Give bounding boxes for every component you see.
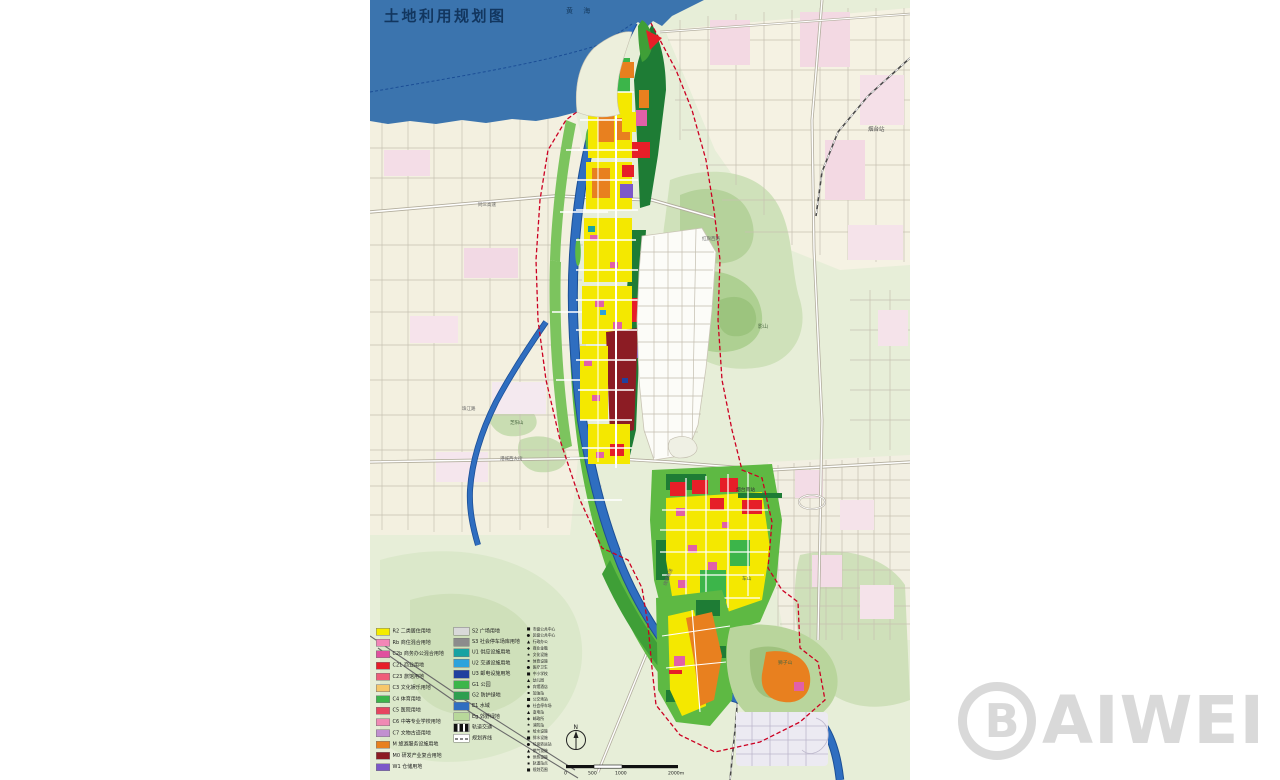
legend-column-landuse-1: R2 二类居住用地Rb 商住混合用地C2b 商务办公混合用地C21 商业用地C2… <box>376 626 450 780</box>
legend-item: S3 社会停车场库用地 <box>453 637 523 648</box>
legend-item-label: C21 商业用地 <box>393 663 424 668</box>
legend-symbol-icon: ● <box>526 666 532 670</box>
legend-item-label: M 旅游服务设施用地 <box>393 742 439 747</box>
legend-item-label: C23 旅馆用地 <box>393 674 424 679</box>
legend-color-swatch <box>453 734 469 743</box>
sea-name-label: 黄 海 <box>566 6 594 15</box>
legend-item-label: S3 社会停车场库用地 <box>472 640 520 645</box>
legend-item-label: C4 体育用地 <box>393 697 421 702</box>
legend: R2 二类居住用地Rb 商住混合用地C2b 商务办公混合用地C21 商业用地C2… <box>376 626 576 780</box>
legend-item-label: 中小学校 <box>533 672 548 676</box>
legend-color-swatch <box>376 639 390 647</box>
legend-color-swatch <box>376 730 390 738</box>
legend-item-label: 邮政所 <box>533 717 544 721</box>
legend-item-label: 垃圾转运站 <box>533 742 552 746</box>
legend-item-label: U3 邮电设施用地 <box>472 672 510 677</box>
legend-symbol-icon: ◆ <box>526 685 532 689</box>
legend-item: 轨道交通 <box>453 722 523 733</box>
legend-item-label: 给水设施 <box>533 730 548 734</box>
legend-color-swatch <box>453 713 469 722</box>
legend-color-swatch <box>453 670 469 679</box>
legend-symbol-icon: ● <box>526 742 532 746</box>
legend-item: 规划界线 <box>453 733 523 744</box>
legend-item-label: 社会停车场 <box>533 704 552 708</box>
legend-item-label: M0 研发产业复合用地 <box>393 753 442 758</box>
gangcheng-west-street-label: 港城西大街 <box>500 455 523 462</box>
legend-item: Rb 商住混合用地 <box>376 637 450 648</box>
legend-item-label: U2 交通设施用地 <box>472 661 510 666</box>
legend-item: W1 仓储用地 <box>376 762 450 773</box>
legend-item: C4 体育用地 <box>376 694 450 705</box>
legend-item-label: C5 医院用地 <box>393 708 421 713</box>
legend-color-swatch <box>376 662 390 670</box>
land-use-plan-screenshot: 土地利用规划图 黄 海 烟台站 红旗西路 影山 同三高速 珠江路 芝阳山 港城西… <box>0 0 1280 780</box>
hongqi-west-road-label: 红旗西路 <box>702 235 720 242</box>
legend-item-label: 市级公共中心 <box>533 627 556 631</box>
legend-color-swatch <box>453 638 469 647</box>
legend-item-label: W1 仓储用地 <box>393 765 423 770</box>
legend-color-swatch <box>376 628 390 636</box>
legend-item: C3 文化娱乐用地 <box>376 682 450 693</box>
legend-item-label: C7 文物古迹用地 <box>393 731 431 736</box>
legend-color-swatch <box>453 723 469 732</box>
legend-item-label: C6 中等专业学校用地 <box>393 720 441 725</box>
legend-item: M 旅游服务设施用地 <box>376 739 450 750</box>
legend-item-label: 医疗卫生 <box>533 666 548 670</box>
legend-symbol-icon: ▲ <box>526 678 532 682</box>
legend-symbol-icon: ■ <box>526 768 532 772</box>
legend-item: C6 中等专业学校用地 <box>376 716 450 727</box>
zhiyang-mountain-label: 芝阳山 <box>510 419 524 426</box>
legend-symbol-icon: ◆ <box>526 717 532 721</box>
legend-color-swatch <box>453 659 469 668</box>
legend-item: C2b 商务办公混合用地 <box>376 649 450 660</box>
legend-item-label: 幼儿园 <box>533 679 544 683</box>
watermark-b-icon: B <box>958 682 1036 760</box>
legend-symbol-icon: ■ <box>526 672 532 676</box>
legend-symbol-icon: ▪ <box>526 659 532 663</box>
legend-item: G1 公园 <box>453 679 523 690</box>
yantai-station-label: 烟台站 <box>868 125 885 133</box>
legend-column-symbols: ■市级公共中心●区级公共中心▲行政办公◆商业金融★文化设施▪体育设施●医疗卫生■… <box>526 626 576 780</box>
legend-item-label: U1 供应设施用地 <box>472 650 510 655</box>
map-title: 土地利用规划图 <box>384 7 507 25</box>
legend-color-swatch <box>376 673 390 681</box>
legend-color-swatch <box>376 650 390 658</box>
legend-item: S2 广场用地 <box>453 626 523 637</box>
legend-symbol-icon: ★ <box>526 653 532 657</box>
legend-item-label: 排水设施 <box>533 736 548 740</box>
legend-item-label: Rb 商住混合用地 <box>393 640 431 645</box>
legend-color-swatch <box>376 684 390 692</box>
legend-color-swatch <box>376 718 390 726</box>
legend-symbol-icon: ★ <box>526 723 532 727</box>
legend-color-swatch <box>376 763 390 771</box>
legend-item: U3 邮电设施用地 <box>453 669 523 680</box>
legend-color-swatch <box>376 707 390 715</box>
legend-item-label: 轨道交通 <box>472 725 492 730</box>
legend-item-label: 加油站 <box>533 691 544 695</box>
legend-item-label: 文化设施 <box>533 653 548 657</box>
legend-symbol-icon: ▲ <box>526 710 532 714</box>
legend-item-label: 变电站 <box>533 711 544 715</box>
scale-tick-1000: 1000 <box>615 771 627 777</box>
legend-color-swatch <box>376 696 390 704</box>
legend-symbol-icon: ■ <box>526 736 532 740</box>
legend-item: C21 商业用地 <box>376 660 450 671</box>
watermark-logo: B AIWEI <box>958 682 1265 760</box>
legend-symbol-icon: ◆ <box>526 646 532 650</box>
zhujiang-road-label: 珠江路 <box>462 405 476 412</box>
legend-item: G2 防护绿地 <box>453 690 523 701</box>
yantai-south-station-label: 烟台南站 <box>736 486 755 493</box>
legend-symbol-icon: ■ <box>526 698 532 702</box>
legend-item-label: G2 防护绿地 <box>472 693 501 698</box>
legend-item: C23 旅馆用地 <box>376 671 450 682</box>
scale-tick-500: 500 <box>588 771 597 777</box>
legend-item-label: 燃气设施 <box>533 749 548 753</box>
legend-item-label: 规划范围 <box>533 768 548 772</box>
legend-item: U1 供应设施用地 <box>453 647 523 658</box>
shizi-mountain-label: 狮子山 <box>778 659 793 666</box>
legend-item-label: 规划界线 <box>472 736 492 741</box>
legend-item-label: 行政办公 <box>533 640 548 644</box>
legend-color-swatch <box>376 752 390 760</box>
legend-symbol-icon: ▲ <box>526 640 532 644</box>
legend-item-label: 商业金融 <box>533 647 548 651</box>
legend-color-swatch <box>453 691 469 700</box>
legend-item-label: Eg 郊野绿地 <box>472 714 500 719</box>
legend-item-label: 轨道站点 <box>533 762 548 766</box>
watermark-text: AIWEI <box>1042 688 1265 754</box>
legend-item-label: 区级公共中心 <box>533 634 556 638</box>
legend-color-swatch <box>453 681 469 690</box>
che-mountain-label: 车山 <box>742 575 752 582</box>
legend-item: ■规划范围 <box>526 767 576 773</box>
ying-mountain-label: 影山 <box>758 323 768 330</box>
legend-item-label: 体育设施 <box>533 659 548 663</box>
legend-item-label: C2b 商务办公混合用地 <box>393 652 444 657</box>
legend-symbol-icon: ◆ <box>526 755 532 759</box>
legend-item-label: E1 水域 <box>472 704 490 709</box>
legend-item: E1 水域 <box>453 701 523 712</box>
legend-symbol-icon: ▪ <box>526 730 532 734</box>
legend-color-swatch <box>453 702 469 711</box>
legend-symbol-icon: ● <box>526 634 532 638</box>
legend-item-label: C3 文化娱乐用地 <box>393 686 431 691</box>
legend-symbol-icon: ▲ <box>526 749 532 753</box>
legend-symbol-icon: ▪ <box>526 691 532 695</box>
legend-item-label: 宾馆酒店 <box>533 685 548 689</box>
tongsan-expressway-label: 同三高速 <box>478 201 496 208</box>
legend-symbol-icon: ● <box>526 704 532 708</box>
legend-item-label: S2 广场用地 <box>472 629 500 634</box>
legend-symbol-icon: ■ <box>526 627 532 631</box>
legend-item: Eg 郊野绿地 <box>453 712 523 723</box>
legend-color-swatch <box>376 741 390 749</box>
legend-item-label: 供热设施 <box>533 755 548 759</box>
legend-item-label: G1 公园 <box>472 682 491 687</box>
legend-item-label: 消防站 <box>533 723 544 727</box>
legend-color-swatch <box>453 648 469 657</box>
scale-tick-2000: 2000m <box>668 771 685 777</box>
legend-symbol-icon: ▪ <box>526 762 532 766</box>
legend-item-label: 公交场站 <box>533 698 548 702</box>
legend-item: M0 研发产业复合用地 <box>376 750 450 761</box>
legend-item: U2 交通设施用地 <box>453 658 523 669</box>
legend-item: C7 文物古迹用地 <box>376 728 450 739</box>
legend-item: C5 医院用地 <box>376 705 450 716</box>
legend-color-swatch <box>453 627 469 636</box>
legend-item-label: R2 二类居住用地 <box>393 629 431 634</box>
legend-item: R2 二类居住用地 <box>376 626 450 637</box>
legend-column-landuse-2: S2 广场用地S3 社会停车场库用地U1 供应设施用地U2 交通设施用地U3 邮… <box>453 626 523 780</box>
